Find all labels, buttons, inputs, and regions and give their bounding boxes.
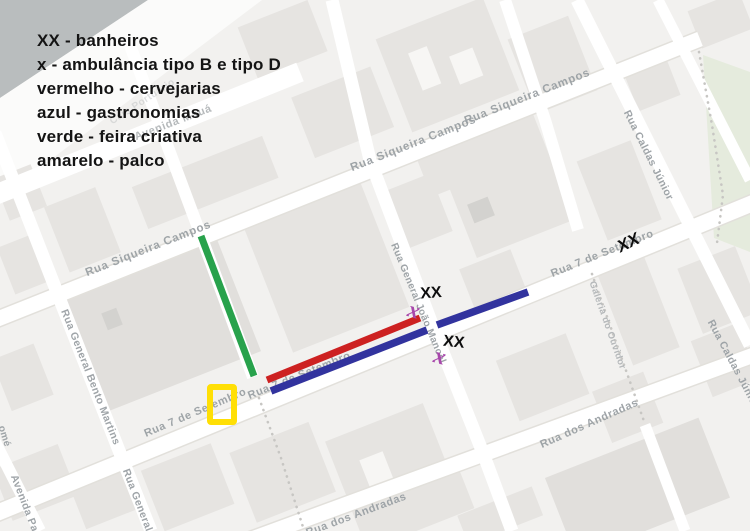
legend-line-ambulancia: x - ambulância tipo B e tipo D: [37, 53, 281, 77]
legend-line-cervejarias: vermelho - cervejarias: [37, 77, 281, 101]
legend-line-feira: verde - feira criativa: [37, 125, 281, 149]
map-screenshot: Rua Siqueira CamposRua Siqueira CamposRu…: [0, 0, 750, 531]
legend-line-banheiros: XX - banheiros: [37, 29, 281, 53]
banheiros-marker: XX: [420, 284, 443, 302]
legend-line-palco: amarelo - palco: [37, 149, 281, 173]
legend-line-gastronomias: azul - gastronomias: [37, 101, 281, 125]
legend: XX - banheiros x - ambulância tipo B e t…: [37, 29, 281, 173]
